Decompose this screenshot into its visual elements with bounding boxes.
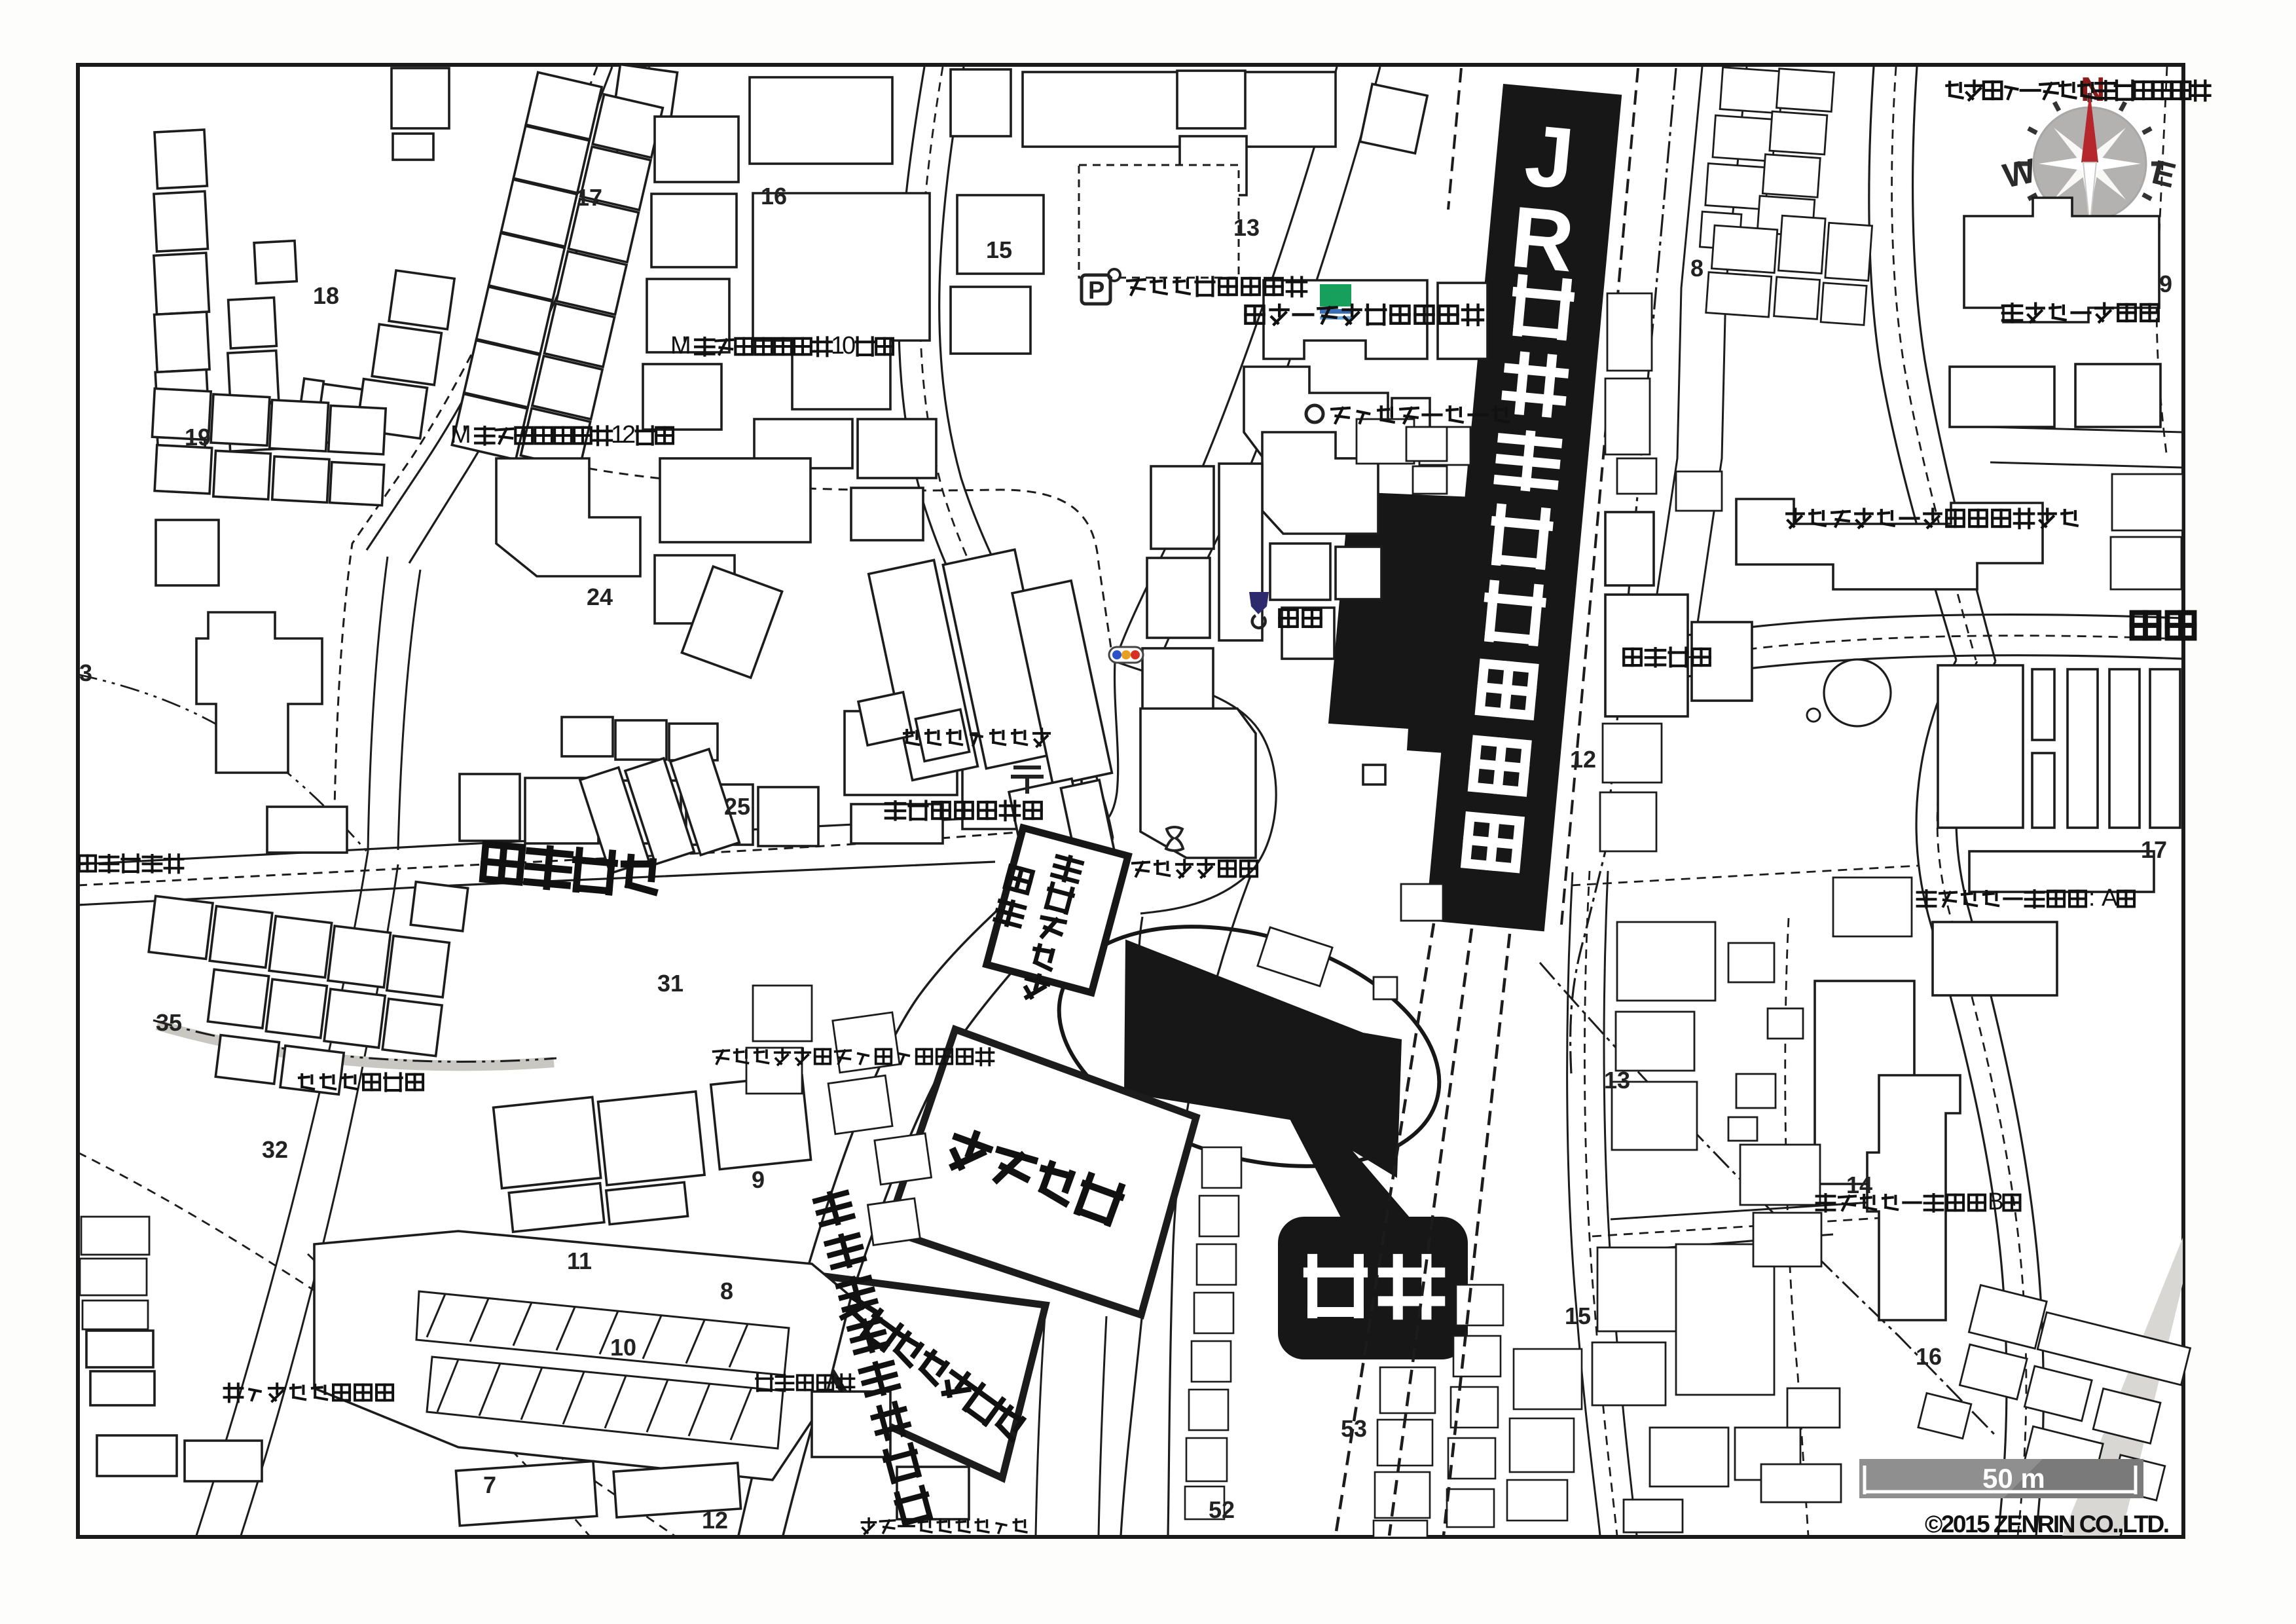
svg-text:8: 8 <box>720 1278 733 1304</box>
svg-text:17: 17 <box>576 184 602 211</box>
svg-text:7: 7 <box>483 1471 496 1498</box>
svg-text:M: M <box>450 421 471 449</box>
svg-text:10: 10 <box>610 1334 636 1361</box>
svg-text:15: 15 <box>986 236 1012 263</box>
svg-text:53: 53 <box>1341 1415 1367 1442</box>
svg-text:8: 8 <box>1690 255 1704 282</box>
svg-text:17: 17 <box>2141 836 2167 863</box>
svg-text:50 m: 50 m <box>1982 1463 2045 1494</box>
svg-text:12: 12 <box>702 1507 728 1534</box>
svg-text:14: 14 <box>1846 1172 1872 1198</box>
svg-text:0: 0 <box>842 332 856 360</box>
svg-text:15: 15 <box>1565 1302 1591 1329</box>
svg-text:2: 2 <box>622 421 636 449</box>
svg-text:32: 32 <box>262 1136 288 1163</box>
svg-text:25: 25 <box>724 793 750 820</box>
svg-text:12: 12 <box>1570 746 1596 773</box>
svg-text:52: 52 <box>1209 1496 1235 1523</box>
svg-text::: : <box>2088 884 2095 911</box>
svg-text:24: 24 <box>587 583 613 610</box>
svg-text:11: 11 <box>567 1247 592 1274</box>
svg-text:©2015 ZENRIN CO.,LTD.: ©2015 ZENRIN CO.,LTD. <box>1925 1511 2170 1538</box>
svg-text:M: M <box>670 332 691 360</box>
svg-text:16: 16 <box>761 183 787 210</box>
svg-text:19: 19 <box>185 424 211 451</box>
svg-text:R: R <box>1507 188 1578 289</box>
svg-text:18: 18 <box>313 282 339 309</box>
svg-text:9: 9 <box>2159 270 2172 297</box>
svg-text:31: 31 <box>657 970 683 997</box>
svg-text:3: 3 <box>79 659 92 686</box>
svg-text:P: P <box>1088 277 1104 304</box>
svg-text:13: 13 <box>1604 1067 1630 1094</box>
svg-text:': ' <box>682 332 687 360</box>
svg-text:B: B <box>1988 1188 2004 1215</box>
svg-text:9: 9 <box>752 1166 765 1193</box>
svg-text:A: A <box>2102 884 2118 911</box>
svg-text:13: 13 <box>1233 214 1260 241</box>
svg-text:16: 16 <box>1916 1343 1942 1370</box>
svg-text:35: 35 <box>156 1009 182 1036</box>
svg-text:': ' <box>462 421 467 449</box>
